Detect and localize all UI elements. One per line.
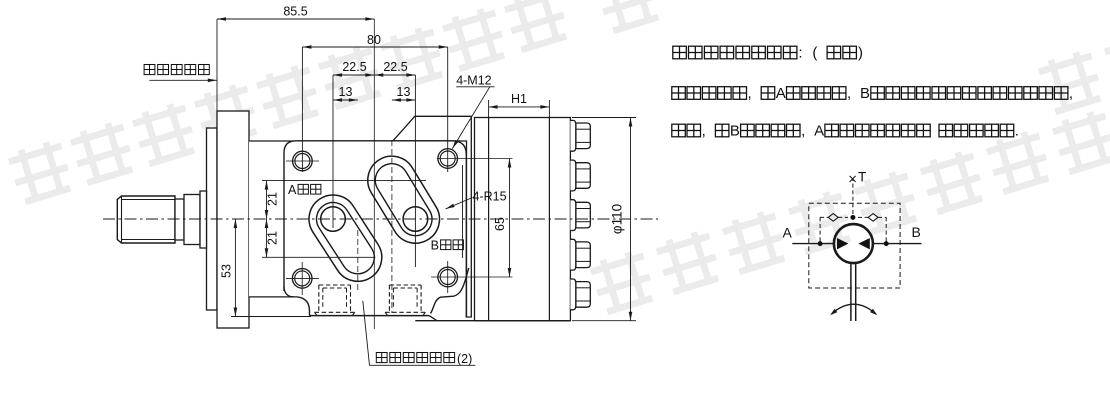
svg-text:A: A xyxy=(776,85,787,102)
svg-text:,: , xyxy=(847,85,852,102)
svg-text::: : xyxy=(798,44,803,61)
svg-text:4-M12: 4-M12 xyxy=(456,74,491,88)
svg-text:,: , xyxy=(801,122,806,139)
svg-text:,: , xyxy=(702,122,707,139)
svg-text:φ110: φ110 xyxy=(610,204,625,234)
svg-text:,: , xyxy=(748,85,753,102)
svg-text:22.5: 22.5 xyxy=(342,60,366,74)
svg-text:13: 13 xyxy=(397,85,411,99)
svg-text:,: , xyxy=(1069,85,1074,102)
svg-text:.: . xyxy=(1015,122,1020,139)
svg-text:80: 80 xyxy=(367,33,381,47)
svg-text:A: A xyxy=(783,225,793,241)
svg-text:(: ( xyxy=(812,44,818,61)
svg-text:65: 65 xyxy=(493,217,507,231)
svg-text:B: B xyxy=(730,122,741,139)
svg-text:21: 21 xyxy=(266,231,280,245)
svg-text:B: B xyxy=(860,85,871,102)
svg-text:): ) xyxy=(858,44,864,61)
svg-text:A: A xyxy=(288,183,297,197)
svg-text:A: A xyxy=(814,122,825,139)
svg-text:B: B xyxy=(431,239,439,253)
svg-text:53: 53 xyxy=(220,264,234,278)
svg-text:4-R15: 4-R15 xyxy=(473,190,507,204)
svg-text:(2): (2) xyxy=(457,352,472,366)
svg-text:T: T xyxy=(858,170,866,185)
svg-text:22.5: 22.5 xyxy=(383,60,407,74)
svg-text:13: 13 xyxy=(339,85,353,99)
svg-text:21: 21 xyxy=(266,192,280,206)
svg-text:B: B xyxy=(912,224,921,240)
svg-text:85.5: 85.5 xyxy=(283,5,307,19)
svg-text:H1: H1 xyxy=(511,92,527,106)
